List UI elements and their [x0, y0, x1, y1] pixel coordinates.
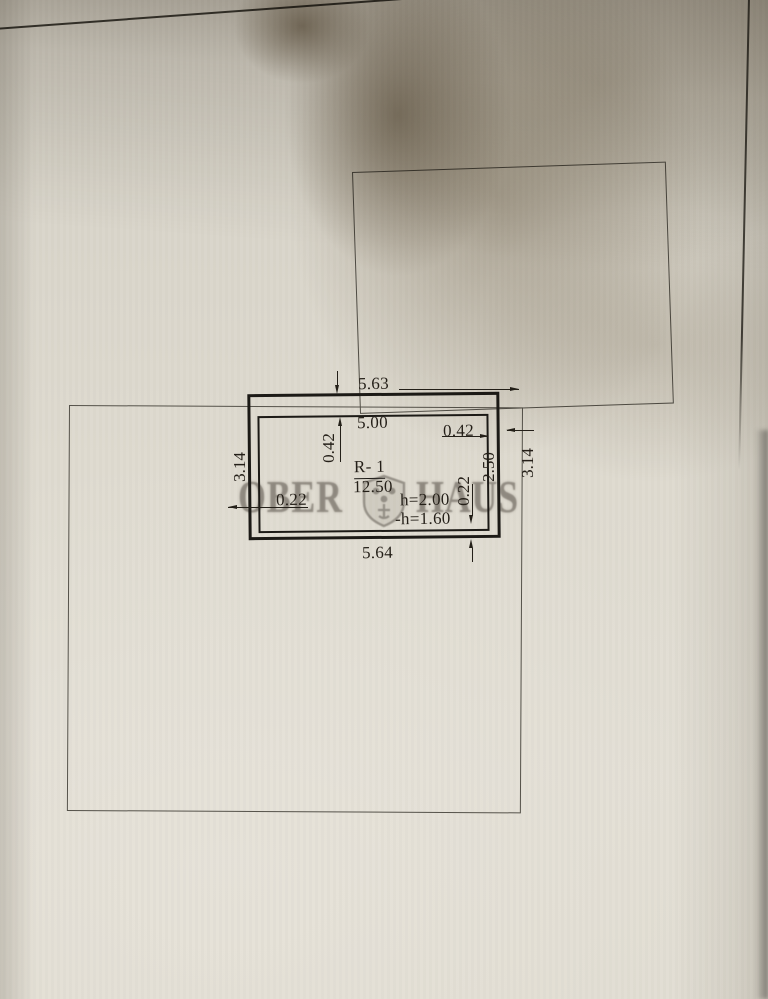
dim-arrow-left-icon — [506, 428, 515, 432]
dim-side-left-label: 3.14 — [230, 442, 250, 492]
dim-top-inner-label: 5.00 — [357, 413, 388, 433]
dim-top-outer-label: 5.63 — [358, 374, 389, 394]
room-height-label: h=2.00 — [400, 490, 450, 511]
dim-side-right-label: 3.14 — [518, 438, 538, 488]
dim-inner-height-label: 2.50 — [479, 442, 499, 492]
dim-arrow-up-icon — [469, 539, 473, 548]
adjacent-outline-top — [352, 162, 674, 414]
paper-right-edge — [755, 430, 768, 999]
dim-arrow-down-icon — [469, 515, 473, 524]
dim-arrow-right-icon — [480, 434, 489, 438]
page-frame-top-line — [0, 0, 407, 30]
dim-bottom-outer-label: 5.64 — [362, 543, 393, 563]
room-height-reduced-label: -h=1.60 — [395, 509, 451, 530]
dim-line — [399, 389, 519, 390]
dim-line — [228, 507, 308, 508]
dim-arrow-left-icon — [228, 505, 237, 509]
room-area-label: 12.50 — [353, 477, 393, 498]
floor-plan-drawing: 5.63 5.00 0.42 0.42 3.14 3.14 2.50 0.22 … — [0, 0, 768, 999]
dim-line — [337, 371, 338, 386]
dim-line — [472, 548, 473, 562]
dim-line — [340, 426, 341, 462]
dim-arrow-down-icon — [335, 385, 339, 394]
dim-arrow-right-icon — [510, 387, 519, 391]
page-frame-right-line — [738, 0, 749, 470]
room-name-label: R- 1 — [354, 457, 385, 479]
dim-wall-top-left-label: 0.42 — [319, 423, 339, 473]
dim-wall-top-right-label: 0.42 — [443, 421, 474, 441]
photo-of-floor-plan: OBER HAUS 5.63 5.00 0.42 0.42 — [0, 0, 768, 999]
dim-line — [472, 484, 473, 516]
